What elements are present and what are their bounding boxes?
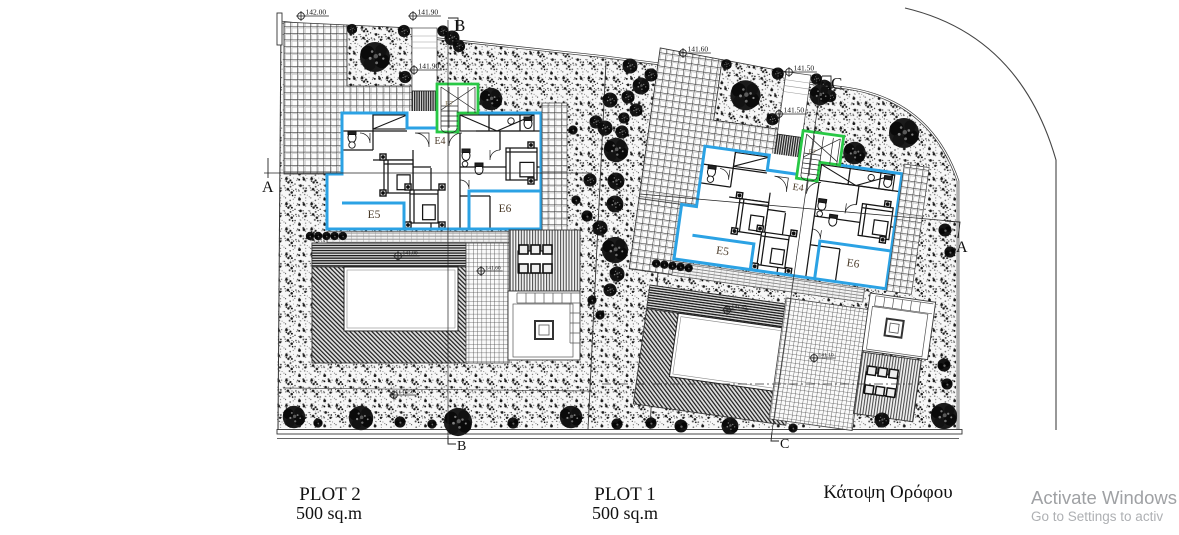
svg-text:141.90: 141.90 [419,62,440,71]
svg-text:141.60: 141.60 [688,45,709,54]
svg-text:141.90: 141.90 [418,8,439,17]
svg-text:141.45: 141.45 [732,305,747,311]
svg-text:Go to Settings to activ: Go to Settings to activ [1031,509,1163,524]
svg-text:E5: E5 [715,245,730,259]
svg-text:Activate Windows: Activate Windows [1031,487,1177,508]
svg-text:141.50: 141.50 [794,64,815,73]
svg-text:141.80: 141.80 [403,251,418,257]
svg-text:PLOT 1: PLOT 1 [594,484,655,505]
svg-text:500 sq.m: 500 sq.m [592,503,658,523]
svg-text:C: C [780,437,789,452]
svg-text:142.00: 142.00 [306,8,327,17]
svg-text:500 sq.m: 500 sq.m [296,503,362,523]
svg-text:Κάτοψη Ορόφου: Κάτοψη Ορόφου [823,482,952,503]
svg-text:141.60: 141.60 [486,266,501,272]
svg-text:C: C [831,74,842,93]
svg-text:B: B [454,16,465,35]
svg-text:E4: E4 [434,136,445,147]
svg-text:A: A [262,179,274,196]
svg-text:PLOT 2: PLOT 2 [299,484,360,505]
svg-text:A: A [956,239,968,256]
svg-text:141.10: 141.10 [819,353,834,359]
svg-text:E7: E7 [445,100,453,108]
svg-text:E4: E4 [792,182,805,194]
svg-text:E6: E6 [499,203,512,215]
svg-text:141.50: 141.50 [399,390,414,396]
svg-text:B: B [457,439,466,454]
svg-text:141.50: 141.50 [784,106,805,115]
svg-text:E6: E6 [846,257,861,271]
svg-text:E5: E5 [368,209,381,221]
